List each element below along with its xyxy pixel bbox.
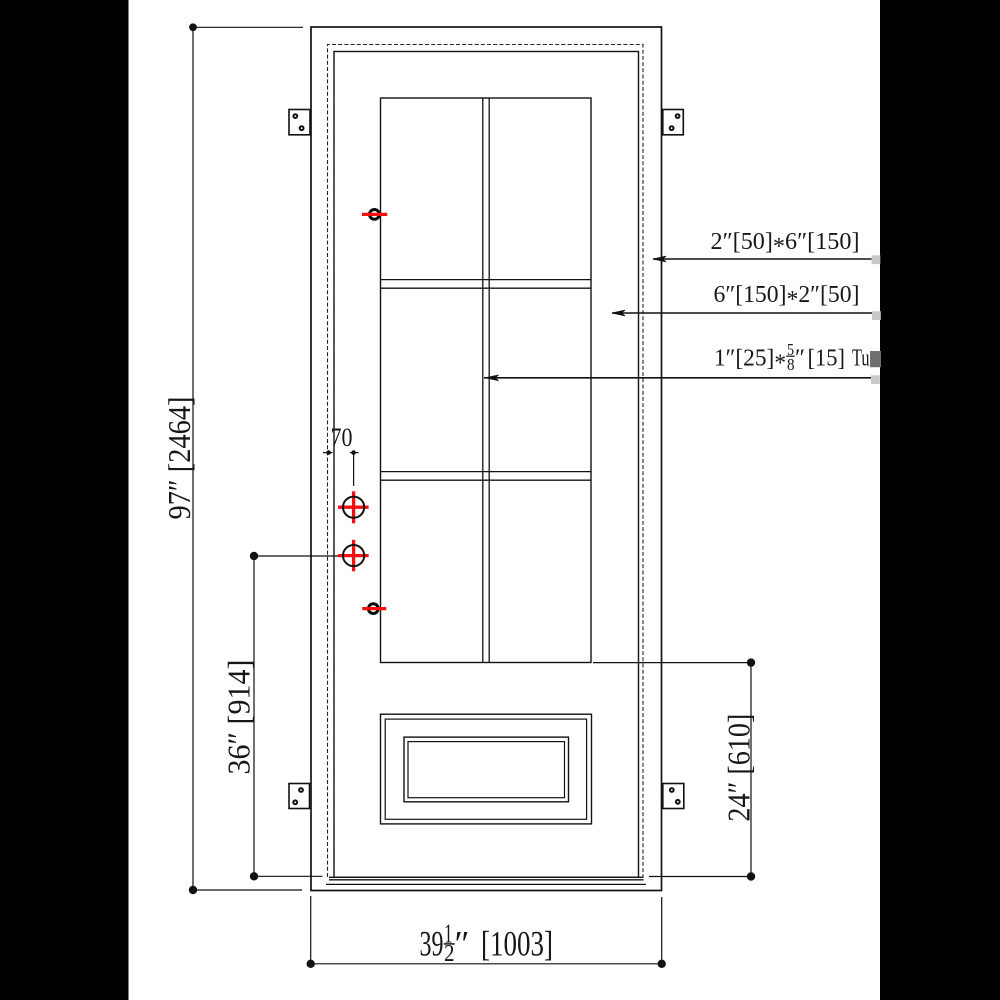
svg-text:[1003]: [1003]	[481, 924, 553, 964]
svg-text:Tu: Tu	[852, 346, 870, 372]
svg-text:97″ [2464]: 97″ [2464]	[161, 397, 197, 520]
svg-text:″: ″	[455, 924, 470, 964]
svg-text:36″ [914]: 36″ [914]	[221, 660, 257, 775]
svg-text:″: ″	[795, 346, 805, 372]
svg-text:24″ [610]: 24″ [610]	[721, 714, 757, 822]
svg-text:39: 39	[420, 924, 444, 964]
svg-text:8: 8	[787, 355, 795, 374]
svg-text:2: 2	[444, 941, 455, 967]
svg-text:70: 70	[331, 423, 353, 452]
svg-text:[15]: [15]	[808, 346, 846, 372]
